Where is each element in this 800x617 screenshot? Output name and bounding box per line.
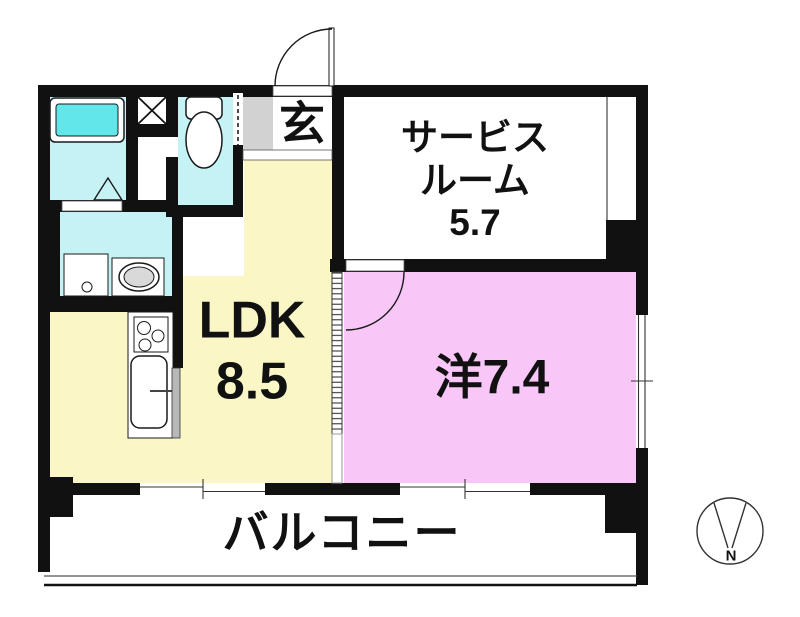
compass xyxy=(697,498,763,564)
washer-space-x-mark xyxy=(138,97,166,124)
wall-segment xyxy=(332,85,344,272)
wall-segment xyxy=(606,220,636,259)
washbasin-inner xyxy=(124,267,154,287)
counter-edge xyxy=(172,368,180,438)
wall-pillar xyxy=(605,483,648,533)
toilet-bowl xyxy=(186,112,222,168)
wall-segment xyxy=(38,483,648,495)
wall-segment xyxy=(126,85,138,206)
entrance-step xyxy=(243,150,332,160)
bathtub-inner xyxy=(56,104,118,136)
wall-segment xyxy=(166,157,178,200)
wall-segment xyxy=(172,205,183,368)
floor-plan-drawing xyxy=(0,0,800,617)
entrance-doorway xyxy=(273,86,332,96)
wall-segment xyxy=(38,200,60,312)
partition-opening xyxy=(332,434,342,483)
stove-burner xyxy=(139,339,151,351)
compass-needle-icon xyxy=(714,503,746,548)
bathroom-doorway xyxy=(62,201,122,211)
entrance-tataki-floor xyxy=(243,97,273,150)
hatched-partition xyxy=(332,272,342,434)
compass-circle xyxy=(697,498,763,564)
wall-segment xyxy=(233,145,243,212)
entrance-door-arc xyxy=(275,29,332,86)
wall-segment xyxy=(38,296,183,312)
wall-pillar xyxy=(38,477,73,517)
stove-burner xyxy=(138,322,151,335)
vanity-drain xyxy=(82,282,92,292)
entrance-door-leaf xyxy=(329,28,334,86)
floor-plan-page: 玄 サービス ルーム 5.7 LDK 8.5 洋7.4 バルコニー N xyxy=(0,0,800,617)
western-room-doorway xyxy=(346,260,404,271)
western-room-floor xyxy=(344,264,636,483)
wall-segment xyxy=(126,124,178,137)
stove-burner xyxy=(152,330,164,342)
ldk-western-partition xyxy=(332,272,342,483)
